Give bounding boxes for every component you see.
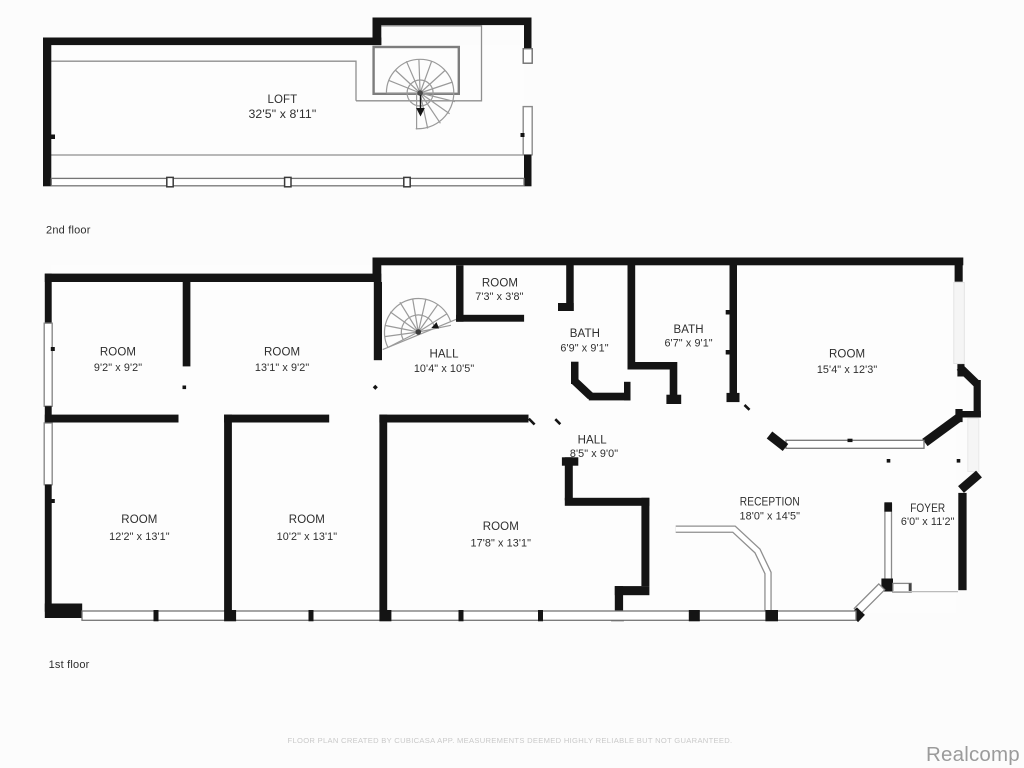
svg-text:9'2" x 9'2": 9'2" x 9'2": [94, 362, 142, 374]
svg-text:HALL: HALL: [578, 435, 608, 447]
svg-text:17'8" x 13'1": 17'8" x 13'1": [471, 538, 532, 550]
svg-text:7'3" x 3'8": 7'3" x 3'8": [475, 291, 523, 303]
svg-text:Realcomp: Realcomp: [926, 743, 1020, 766]
svg-text:FLOOR PLAN CREATED BY CUBICASA: FLOOR PLAN CREATED BY CUBICASA APP. MEAS…: [288, 736, 733, 745]
svg-text:6'0" x 11'2": 6'0" x 11'2": [901, 516, 955, 528]
svg-text:13'1" x 9'2": 13'1" x 9'2": [255, 362, 309, 374]
svg-text:10'4" x 10'5": 10'4" x 10'5": [414, 363, 475, 375]
svg-text:ROOM: ROOM: [483, 521, 519, 533]
svg-text:ROOM: ROOM: [482, 278, 518, 290]
svg-text:FOYER: FOYER: [910, 503, 945, 515]
svg-text:ROOM: ROOM: [100, 347, 136, 359]
svg-text:BATH: BATH: [570, 328, 600, 340]
svg-text:ROOM: ROOM: [264, 347, 300, 359]
svg-text:1st floor: 1st floor: [49, 659, 90, 671]
svg-text:2nd floor: 2nd floor: [46, 225, 91, 237]
svg-text:ROOM: ROOM: [289, 514, 325, 526]
svg-text:ROOM: ROOM: [829, 349, 865, 361]
svg-text:10'2" x 13'1": 10'2" x 13'1": [277, 531, 338, 543]
svg-text:18'0" x 14'5": 18'0" x 14'5": [740, 511, 801, 523]
svg-text:LOFT: LOFT: [268, 94, 298, 106]
svg-text:BATH: BATH: [673, 324, 703, 336]
svg-text:6'9" x 9'1": 6'9" x 9'1": [560, 343, 608, 355]
svg-text:HALL: HALL: [430, 349, 460, 361]
svg-text:ROOM: ROOM: [121, 514, 157, 526]
svg-text:32'5" x 8'11": 32'5" x 8'11": [248, 107, 316, 121]
svg-text:12'2" x 13'1": 12'2" x 13'1": [109, 531, 170, 543]
svg-text:15'4" x 12'3": 15'4" x 12'3": [817, 364, 878, 376]
svg-text:8'5" x 9'0": 8'5" x 9'0": [570, 448, 618, 460]
svg-text:6'7" x 9'1": 6'7" x 9'1": [664, 338, 712, 350]
svg-text:RECEPTION: RECEPTION: [740, 497, 800, 509]
